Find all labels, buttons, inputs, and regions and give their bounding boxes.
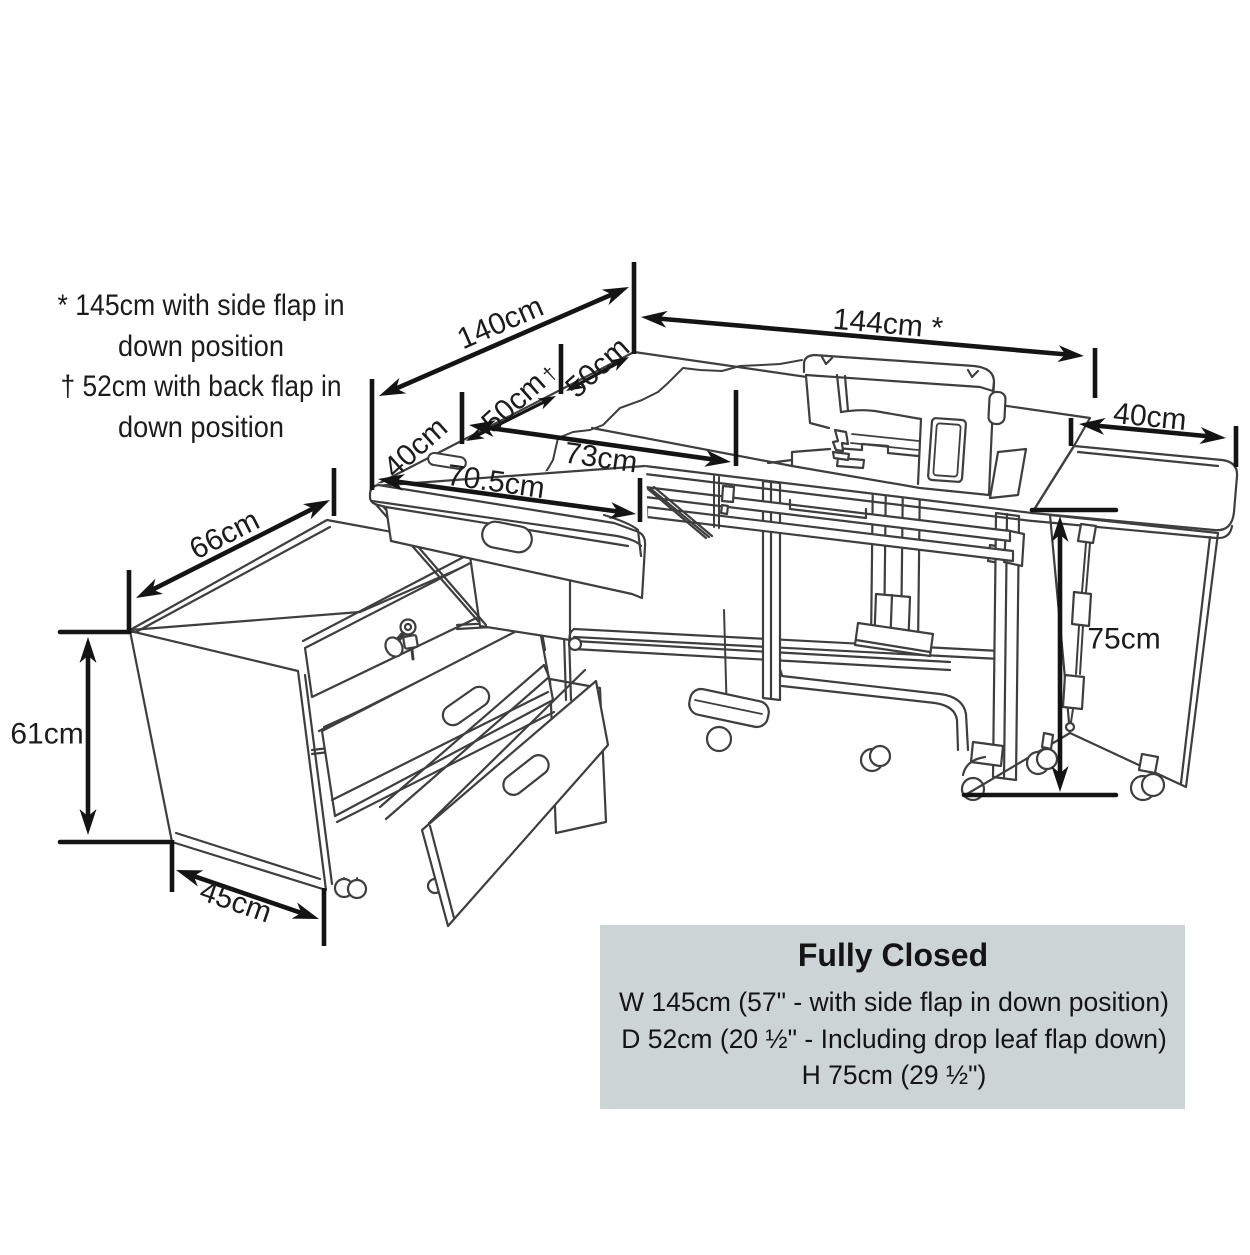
svg-text:down position: down position [118, 330, 284, 363]
svg-text:† 52cm with back flap in: † 52cm with back flap in [61, 370, 342, 403]
svg-text:Fully Closed: Fully Closed [798, 937, 988, 973]
svg-text:H 75cm (29 ½"): H 75cm (29 ½") [802, 1060, 987, 1090]
svg-text:40cm: 40cm [1112, 397, 1188, 437]
svg-text:* 145cm with side flap in: * 145cm with side flap in [58, 289, 345, 322]
svg-text:61cm: 61cm [10, 718, 83, 751]
svg-text:75cm: 75cm [1087, 623, 1160, 656]
svg-text:W 145cm (57" - with side flap: W 145cm (57" - with side flap in down po… [619, 987, 1169, 1017]
svg-text:D 52cm (20 ½" - Including drop: D 52cm (20 ½" - Including drop leaf flap… [621, 1024, 1167, 1054]
svg-text:down position: down position [118, 411, 284, 444]
